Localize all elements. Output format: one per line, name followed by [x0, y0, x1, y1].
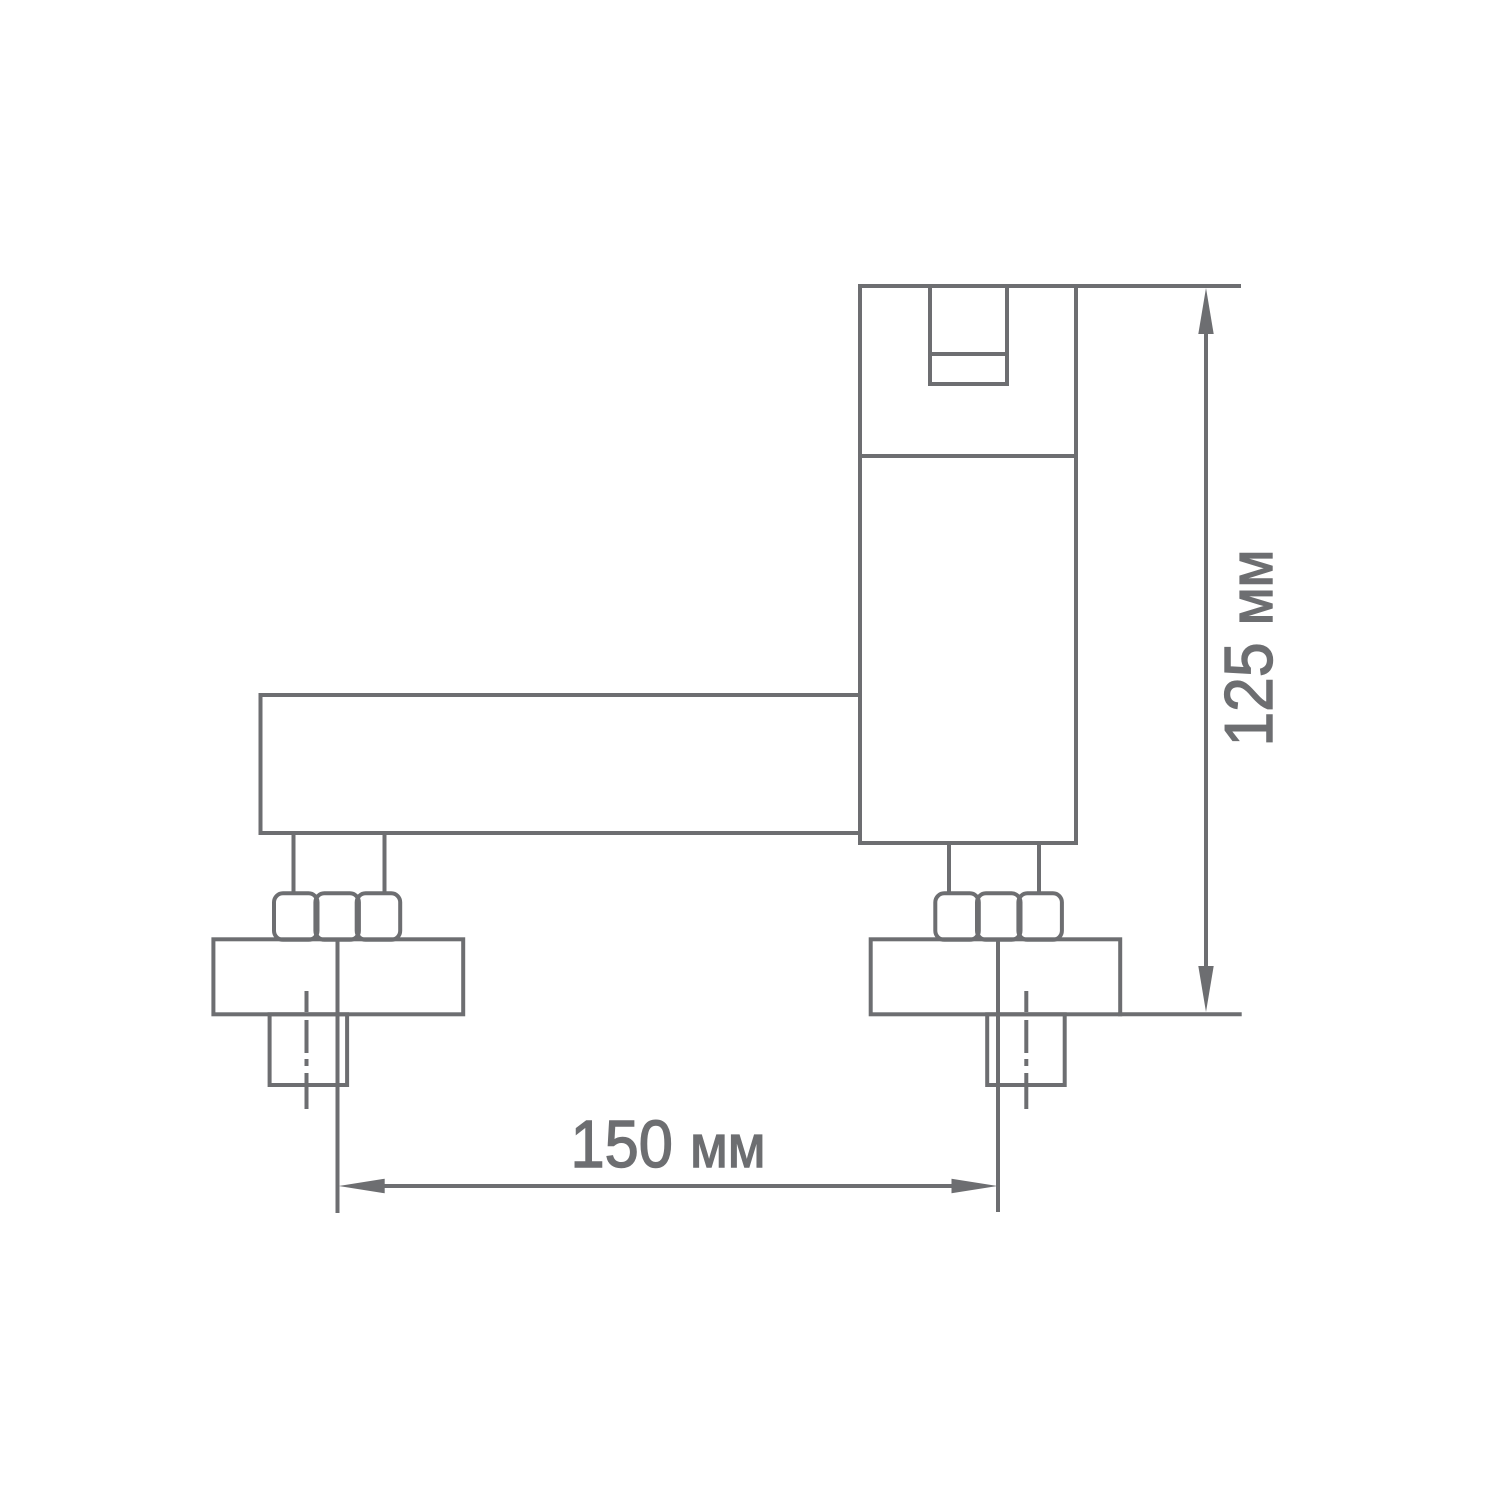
svg-text:150 мм: 150 мм — [571, 1107, 766, 1182]
svg-text:125 мм: 125 мм — [1211, 550, 1287, 747]
